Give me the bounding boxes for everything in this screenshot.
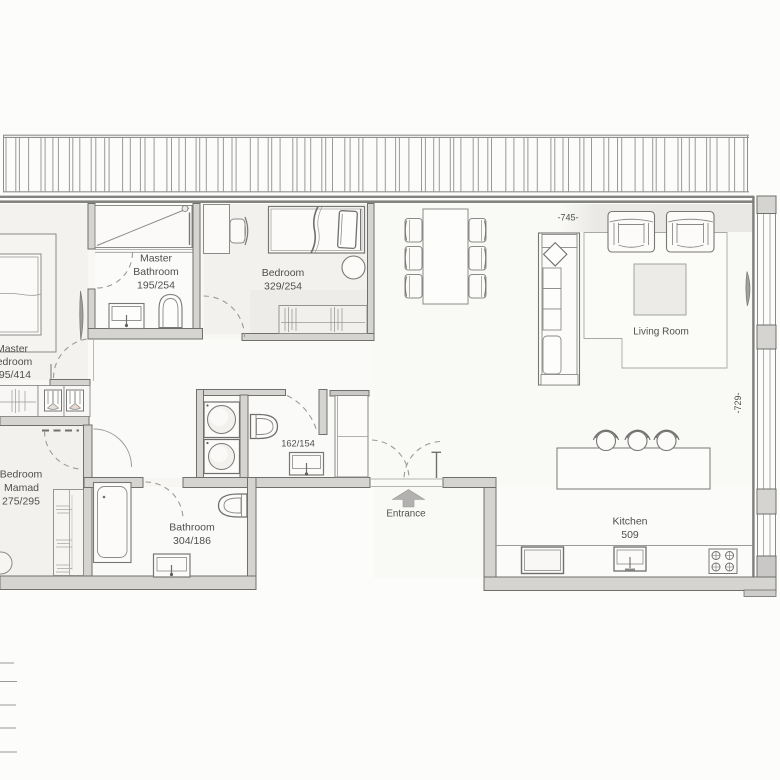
svg-text:329/254: 329/254 [264,281,302,293]
svg-text:Bathroom: Bathroom [133,266,179,278]
svg-text:295/414: 295/414 [0,369,31,381]
svg-text:509: 509 [621,529,639,541]
svg-text:Bathroom: Bathroom [169,522,215,534]
svg-text:275/295: 275/295 [2,496,40,508]
svg-text:304/186: 304/186 [173,535,211,547]
svg-text:-729-: -729- [733,392,743,413]
svg-text:Master: Master [0,343,29,355]
svg-text:162/154: 162/154 [281,439,315,449]
svg-text:Living Room: Living Room [633,327,689,338]
svg-text:Mamad: Mamad [4,482,39,494]
svg-text:Kitchen: Kitchen [612,516,647,528]
svg-text:195/254: 195/254 [137,280,175,292]
svg-text:Entrance: Entrance [386,509,426,520]
svg-text:-745-: -745- [557,213,578,223]
svg-text:Bedroom: Bedroom [262,267,305,279]
svg-text:Bedroom: Bedroom [0,469,43,481]
svg-text:Bedroom: Bedroom [0,356,33,368]
svg-text:Master: Master [140,253,173,265]
